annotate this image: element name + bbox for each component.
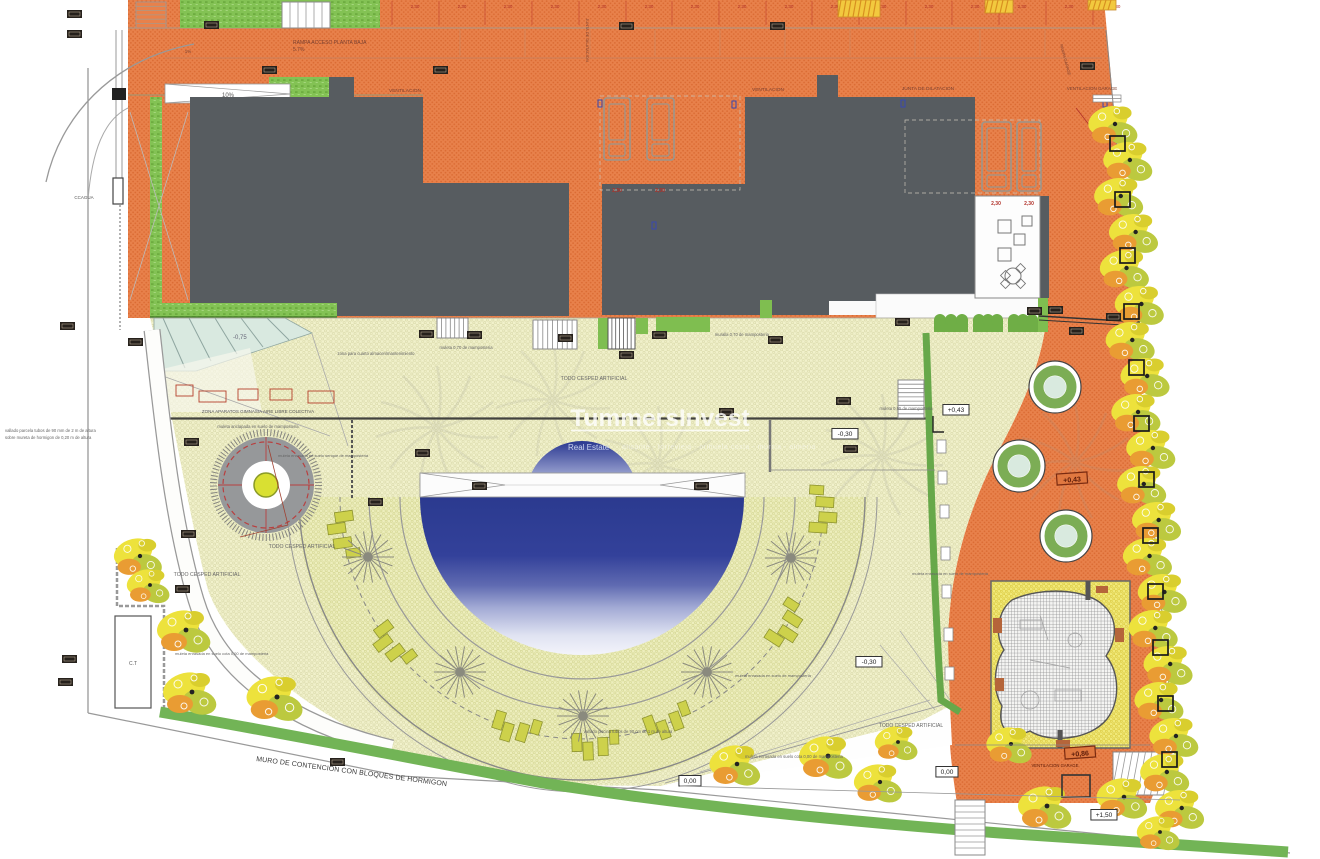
svg-text:muleta enrasada en suelo de ma: muleta enrasada en suelo de mamposteria bbox=[912, 571, 989, 576]
svg-text:TummersInvest: TummersInvest bbox=[570, 405, 749, 432]
svg-text:2,30: 2,30 bbox=[971, 4, 980, 9]
svg-text:muleta anclapada en suelo de m: muleta anclapada en suelo de mamposteria bbox=[217, 424, 299, 429]
svg-text:+0,43: +0,43 bbox=[1063, 476, 1081, 484]
svg-text:sobre mureta de hormigon de 0,: sobre mureta de hormigon de 0,20 m de al… bbox=[5, 435, 92, 440]
svg-text:1%: 1% bbox=[185, 49, 192, 54]
svg-text:2,30: 2,30 bbox=[691, 4, 700, 9]
svg-text:0,00: 0,00 bbox=[684, 778, 697, 785]
svg-text:muleta enrasada en suelo cota: muleta enrasada en suelo cota 0,00 de ma… bbox=[745, 754, 843, 759]
svg-text:vallado parcela tubos de 90 mm: vallado parcela tubos de 90 mm de 2 m de… bbox=[5, 428, 96, 433]
svg-text:2,30: 2,30 bbox=[991, 201, 1001, 207]
svg-text:2,30: 2,30 bbox=[785, 4, 794, 9]
svg-text:0,00: 0,00 bbox=[941, 769, 954, 776]
svg-text:VENTILACION: VENTILACION bbox=[752, 87, 785, 93]
svg-text:2,30: 2,30 bbox=[645, 4, 654, 9]
svg-text:muleta enrasada en suelo cota: muleta enrasada en suelo cota 0,00 de ma… bbox=[175, 651, 269, 656]
svg-text:alicante - torrevieja - or: alicante - torrevieja - orihuela costa -… bbox=[622, 444, 816, 451]
svg-text:2,30: 2,30 bbox=[655, 188, 665, 194]
svg-text:2,30: 2,30 bbox=[458, 4, 467, 9]
svg-text:C.T: C.T bbox=[129, 661, 137, 667]
svg-text:2,30: 2,30 bbox=[612, 188, 622, 194]
svg-text:muralla 0,70 de mamposteria: muralla 0,70 de mamposteria bbox=[715, 332, 770, 337]
svg-text:vallado piscina tubos de 90 cm: vallado piscina tubos de 90 cm de 1 m de… bbox=[584, 729, 673, 734]
svg-text:CCAGUA: CCAGUA bbox=[74, 195, 93, 200]
svg-text:RAMPA ACCESO PLANTA BAJA: RAMPA ACCESO PLANTA BAJA bbox=[293, 40, 367, 46]
svg-text:TODO CESPED ARTIFICIAL: TODO CESPED ARTIFICIAL bbox=[269, 544, 336, 550]
svg-text:muleta enrasada en suelo de ma: muleta enrasada en suelo de mamposteria bbox=[735, 673, 812, 678]
svg-text:-0,30: -0,30 bbox=[862, 659, 877, 666]
svg-text:+1,50: +1,50 bbox=[1096, 812, 1113, 819]
svg-text:muleta enrasada en suelo senqu: muleta enrasada en suelo senque de mampo… bbox=[278, 453, 369, 458]
svg-text:2,30: 2,30 bbox=[1024, 201, 1034, 207]
svg-text:Real Estate: Real Estate bbox=[568, 443, 610, 452]
svg-text:2,30: 2,30 bbox=[1065, 4, 1074, 9]
svg-text:muleta 0,95 de mamposteria: muleta 0,95 de mamposteria bbox=[879, 406, 933, 411]
svg-text:2,30: 2,30 bbox=[598, 4, 607, 9]
svg-text:VENTILACION GARAGE: VENTILACION GARAGE bbox=[1031, 763, 1078, 768]
svg-text:2,30: 2,30 bbox=[738, 4, 747, 9]
svg-text:2,30: 2,30 bbox=[925, 4, 934, 9]
svg-text:5.7%: 5.7% bbox=[293, 47, 305, 53]
svg-text:2,30: 2,30 bbox=[1018, 4, 1027, 9]
svg-text:VENTILACION GARAGE: VENTILACION GARAGE bbox=[1067, 86, 1118, 91]
svg-text:TODO CESPED ARTIFICIAL: TODO CESPED ARTIFICIAL bbox=[879, 723, 943, 729]
svg-text:JUNTA DE DILATACION: JUNTA DE DILATACION bbox=[585, 18, 590, 62]
svg-text:zona para cuarto almacen/mante: zona para cuarto almacen/mantenimiento bbox=[337, 351, 415, 356]
svg-text:TODO CESPED ARTIFICIAL: TODO CESPED ARTIFICIAL bbox=[561, 376, 628, 382]
svg-text:2,30: 2,30 bbox=[551, 4, 560, 9]
svg-text:VENTILACION: VENTILACION bbox=[389, 88, 422, 94]
svg-text:-0,30: -0,30 bbox=[838, 431, 853, 438]
svg-text:ZONA APARATOS GIMNASIA AIRE LI: ZONA APARATOS GIMNASIA AIRE LIBRE COLECT… bbox=[202, 409, 314, 414]
svg-text:+0,86: +0,86 bbox=[1071, 750, 1089, 758]
svg-text:2,30: 2,30 bbox=[411, 4, 420, 9]
svg-text:TODO CESPED ARTIFICIAL: TODO CESPED ARTIFICIAL bbox=[174, 572, 241, 578]
svg-text:-0,75: -0,75 bbox=[233, 335, 247, 341]
svg-text:2,30: 2,30 bbox=[504, 4, 513, 9]
svg-text:muleta 0,70 de mamposteria: muleta 0,70 de mamposteria bbox=[439, 345, 493, 350]
svg-text:+0,43: +0,43 bbox=[948, 407, 965, 414]
svg-text:JUNTA DE DILATACION: JUNTA DE DILATACION bbox=[902, 86, 955, 92]
